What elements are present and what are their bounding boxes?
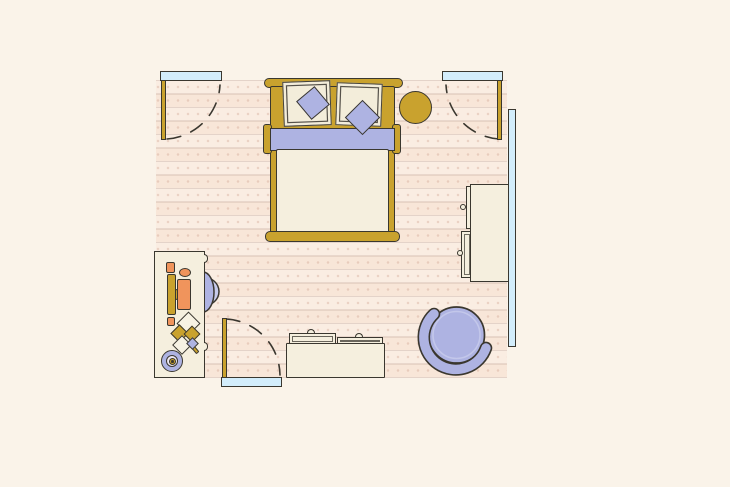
bed-blanket-band <box>270 128 395 151</box>
door-leaf-bottom <box>222 318 227 378</box>
bed-duvet <box>276 149 389 233</box>
doorway-top-left <box>160 71 222 81</box>
dresser-knob-top <box>460 204 466 210</box>
desk-item-gold-bar <box>167 274 176 315</box>
round-side-stool <box>399 91 432 124</box>
dresser-knob-bottom <box>457 250 463 256</box>
window-right-wall <box>508 109 516 347</box>
desk-item-orange-square-top <box>166 262 175 273</box>
desk-item-orange-mat <box>177 279 191 310</box>
door-leaf-top-left <box>161 80 166 140</box>
desk-item-orange-square-bottom <box>167 317 175 326</box>
doorway-top-right <box>442 71 503 81</box>
bench-body <box>286 343 385 378</box>
dresser-body <box>470 184 509 282</box>
desk-item-orange-blob <box>179 268 191 277</box>
floor-plan-illustration <box>0 0 730 487</box>
bed-footboard <box>265 231 400 242</box>
desk-fan-axle <box>171 360 174 363</box>
door-leaf-top-right <box>497 80 502 140</box>
doorway-bottom <box>221 377 282 387</box>
desk-edge-knob-top <box>204 254 208 263</box>
desk-edge-knob-bottom <box>204 342 208 351</box>
